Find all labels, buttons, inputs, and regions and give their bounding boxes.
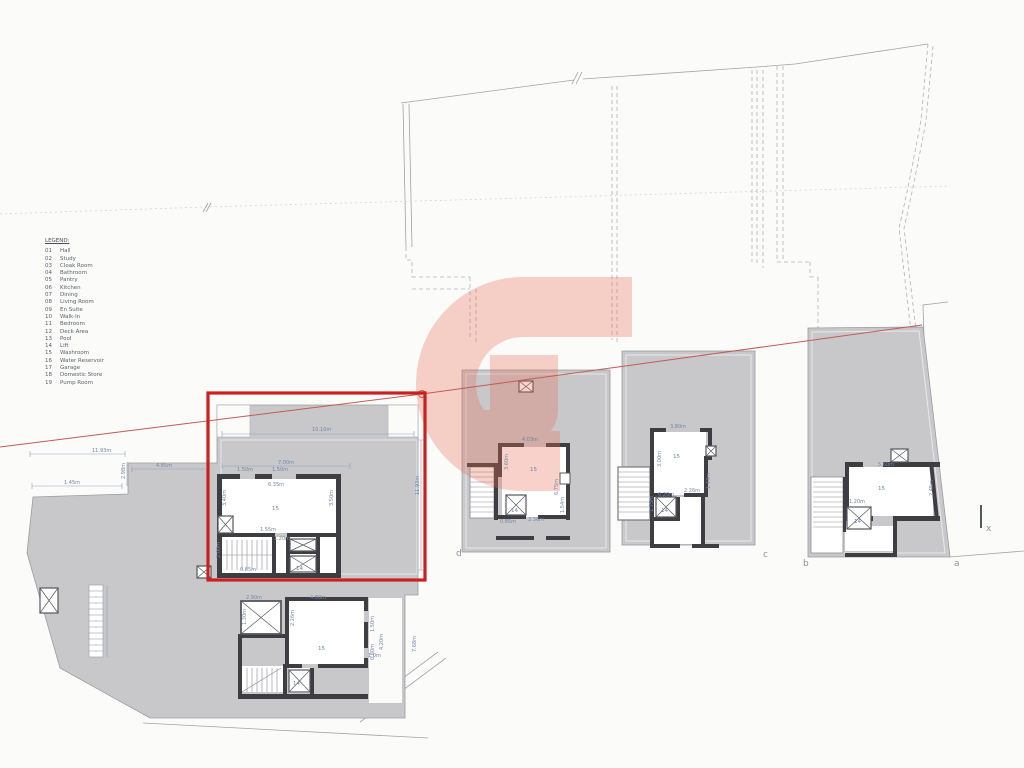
dim-label: 3.80m [670, 424, 686, 430]
roof-void [388, 405, 418, 437]
room-label: 15 [673, 454, 680, 460]
room-label: 14 [296, 566, 303, 572]
dim-label: 1.20m [274, 536, 290, 542]
dim-label: 2.90m [246, 595, 262, 601]
dim-label: 1.44m [706, 473, 712, 489]
dim-label: 1.50m [237, 467, 253, 473]
dim-label: 0.20m [658, 492, 674, 498]
dim-label: 1.50m [370, 616, 376, 632]
plot-letter-x: x [986, 524, 992, 534]
skylight-icon [891, 449, 908, 462]
plot-letter-c: c [763, 550, 768, 560]
dim-label: 5.60m [878, 462, 894, 468]
plot-letter-b: b [803, 559, 809, 569]
unit-ba [808, 327, 950, 557]
dim-label: 7.68m [412, 636, 418, 652]
lift-shaft [290, 539, 316, 572]
dim-label: 2.98m [121, 463, 127, 479]
dim-label: 3.60m [504, 454, 510, 470]
dim-label: 2.26m [684, 488, 700, 494]
dim-label: 4.80m [310, 595, 326, 601]
skylight-icon [40, 588, 58, 613]
dim-label: 11.93m [92, 448, 111, 454]
plot-letter-a: a [954, 559, 960, 569]
dim-label: 4.20m [379, 634, 385, 650]
room-label: 15 [272, 506, 279, 512]
dim-label: 2.45m [929, 480, 935, 496]
lift-shaft [656, 497, 676, 517]
room-label: 14 [661, 508, 668, 514]
dim-label: 1.54m [560, 497, 566, 513]
dim-label: 3.40m [222, 490, 228, 506]
dim-label: 0.85m [500, 519, 516, 525]
dim-label: 3.00m [657, 451, 663, 467]
dim-label: 4.03m [522, 437, 538, 443]
dim-label: 1.75m [649, 496, 655, 512]
dim-label: 6.35m [268, 482, 284, 488]
plot-letter-d: d [456, 549, 462, 559]
room-label: 14 [511, 508, 518, 514]
plan-drawing: 10.10m 7.00m 1.50m 1.50m 6.35m 3.40m 3.5… [0, 0, 1024, 768]
dim-label: 4.85m [156, 463, 172, 469]
dim-label: 6.75m [554, 479, 560, 495]
unit-1-building [217, 474, 341, 578]
dim-label: 0.85m [240, 567, 256, 573]
dim-label: 1.55m [260, 527, 276, 533]
lift-shaft [847, 507, 871, 529]
dim-label: 2.36m [528, 517, 544, 523]
dim-label: 11.93m [415, 476, 421, 495]
room-label: 15 [318, 646, 325, 652]
dim-label: 1.45m [64, 480, 80, 486]
dim-label: 2.00m [216, 542, 222, 558]
dim-label: 7.00m [278, 460, 294, 466]
site-plan-page: LEGEND: 01Hall02Study03Cloak Room04Bathr… [0, 0, 1024, 768]
unit-c [618, 351, 755, 548]
dim-label: 1.0m [368, 653, 381, 659]
room-label: 14 [293, 681, 300, 687]
dim-label: 2.26m [290, 610, 296, 626]
room-label: 14 [854, 519, 861, 525]
dim-label: 3.50m [329, 490, 335, 506]
room-label: 15 [530, 467, 537, 473]
dim-label: 1.50m [272, 467, 288, 473]
room-label: 15 [878, 486, 885, 492]
dim-label: 1.30m [242, 609, 248, 625]
dim-label: 10.10m [312, 427, 331, 433]
shaft-icon [706, 446, 716, 456]
dim-label: 1.20m [849, 499, 865, 505]
shaft-icon [218, 516, 233, 533]
